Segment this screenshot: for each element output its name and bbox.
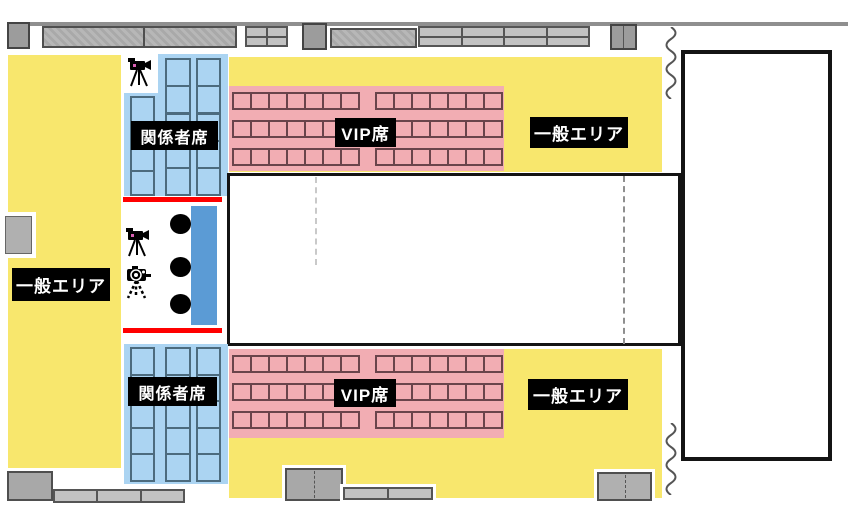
commentator-dot bbox=[170, 214, 191, 234]
staff-seating-area-bottom bbox=[124, 344, 228, 484]
equipment-box bbox=[5, 216, 32, 254]
wall-block bbox=[302, 23, 327, 50]
squiggle-divider-bottom bbox=[663, 423, 679, 495]
tripod-camera-icon bbox=[124, 262, 152, 302]
area-label-staff-bottom: 関係者席 bbox=[128, 377, 217, 406]
camera-platform bbox=[191, 206, 217, 325]
wall-stub-divider bbox=[623, 26, 624, 48]
floor-faint-line bbox=[315, 177, 317, 265]
wall-block-bottom bbox=[285, 468, 343, 501]
right-hall-area bbox=[681, 50, 832, 461]
area-label-general-top: 一般エリア bbox=[530, 117, 628, 148]
bleacher-segment-strip bbox=[418, 26, 590, 47]
bleacher-strip-bottom bbox=[53, 489, 185, 503]
bleacher-segment-block bbox=[245, 26, 288, 47]
bleacher-block bbox=[42, 26, 237, 48]
video-camera-icon bbox=[125, 226, 151, 258]
bleacher-strip-bottom bbox=[343, 487, 433, 500]
bleacher-divider bbox=[143, 28, 145, 46]
wall-block bbox=[7, 22, 30, 49]
video-camera-icon bbox=[127, 56, 153, 88]
squiggle-divider-top bbox=[663, 27, 679, 99]
wall-stub bbox=[610, 24, 637, 50]
area-label-general-left: 一般エリア bbox=[12, 268, 110, 301]
main-floor-area bbox=[227, 173, 681, 346]
commentator-dot bbox=[170, 294, 191, 314]
media-boundary-line-bottom bbox=[123, 328, 222, 333]
media-boundary-line-top bbox=[123, 197, 222, 202]
wall-block-bottom bbox=[597, 472, 652, 501]
commentator-dot bbox=[170, 257, 191, 277]
bleacher-block bbox=[330, 28, 417, 48]
venue-floor-map: 一般エリア 関係者席 VIP席 一般エリア 関係者席 VIP席 一般エリア bbox=[0, 0, 850, 524]
wall-block-bottom bbox=[7, 471, 53, 501]
general-area-left bbox=[8, 55, 121, 468]
area-label-vip-top: VIP席 bbox=[335, 118, 396, 147]
area-label-general-bottom: 一般エリア bbox=[528, 379, 628, 410]
block-dashed-divider bbox=[314, 471, 315, 498]
floor-dashed-line bbox=[623, 176, 625, 344]
area-label-vip-bottom: VIP席 bbox=[334, 379, 396, 407]
area-label-staff-top: 関係者席 bbox=[131, 121, 218, 150]
block-dashed-divider bbox=[625, 475, 626, 498]
